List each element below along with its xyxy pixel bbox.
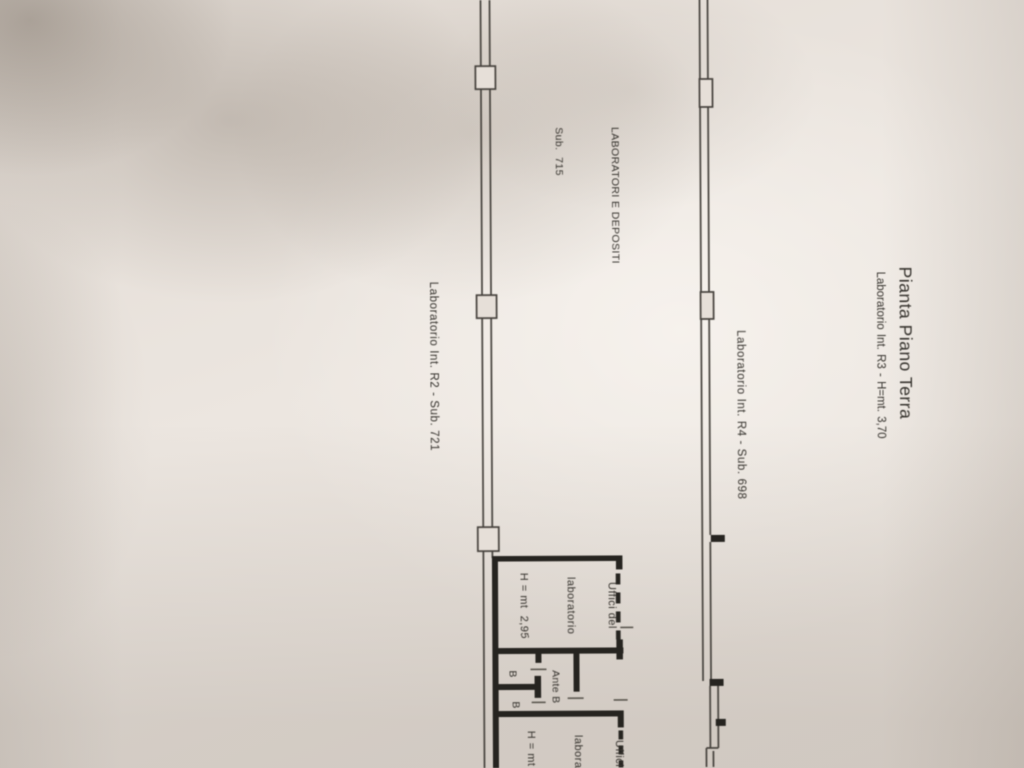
floor-plan-photo: Pianta Piano Terra Laboratorio Int. R3 -… xyxy=(0,0,1024,768)
zone-label-line2: Sub. 715 xyxy=(550,127,569,264)
office1-line3: H = mt 2,95 xyxy=(516,573,530,639)
office1-label: Uffici del laboratorio H = mt 2,95 xyxy=(489,572,645,639)
bath-top-label: B xyxy=(506,670,518,677)
label-laboratorio-r4: Laboratorio Int. R4 - Sub. 698 xyxy=(733,330,747,500)
office2-line1: Uffici del xyxy=(611,730,625,768)
zone-label: LABORATORI E DEPOSITI Sub. 715 xyxy=(513,127,662,265)
zone-label-line1: LABORATORI E DEPOSITI xyxy=(605,127,624,264)
floor-plan-drawing xyxy=(0,0,1024,768)
office2-label: Uffici del laboratorio H = mt 2,95 xyxy=(496,730,652,768)
ante-label: Ante B xyxy=(549,670,561,703)
plan-subtitle: Laboratorio Int. R3 - H=mt. 3,70 xyxy=(873,272,887,439)
bath-bottom-label: B xyxy=(510,701,522,708)
office2-line3: H = mt 2,95 xyxy=(523,731,537,768)
office2-line2: laboratorio xyxy=(571,731,585,768)
plan-title: Pianta Piano Terra xyxy=(895,267,916,420)
office1-line2: laboratorio xyxy=(564,573,578,639)
floor-plan-sheet: Pianta Piano Terra Laboratorio Int. R3 -… xyxy=(0,0,1024,768)
label-laboratorio-r2: Laboratorio Int. R2 - Sub. 721 xyxy=(426,282,440,452)
office1-line1: Uffici del xyxy=(604,572,618,638)
